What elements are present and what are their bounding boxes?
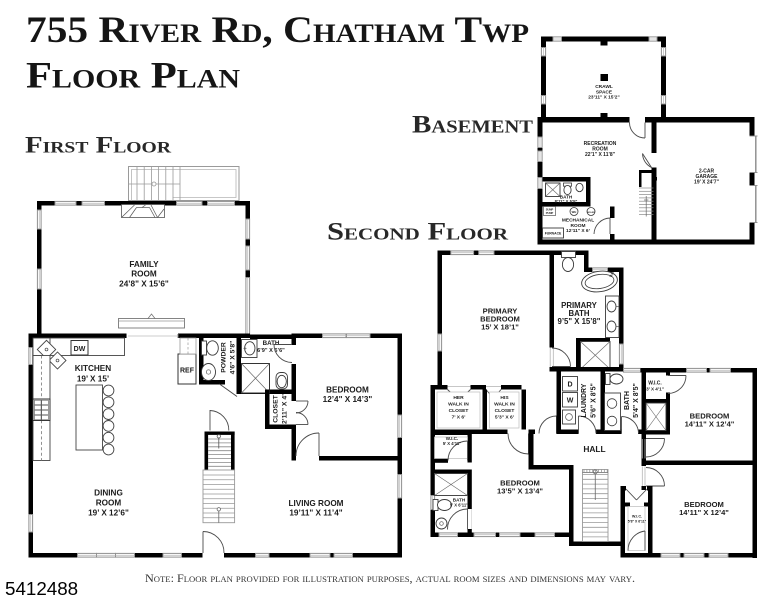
svg-text:8’11" X 5’5": 8’11" X 5’5" [555,199,578,204]
svg-text:19’ X 12’6": 19’ X 12’6" [88,509,129,518]
svg-text:12’4" X 14’3": 12’4" X 14’3" [323,395,373,404]
svg-text:5’3" X 6’: 5’3" X 6’ [495,415,515,421]
svg-text:5’ X 6’11": 5’ X 6’11" [450,503,468,508]
svg-text:SPACE: SPACE [596,89,613,95]
svg-text:LAUNDRY: LAUNDRY [581,383,588,417]
svg-text:14’11" X 12’4": 14’11" X 12’4" [679,508,729,517]
svg-text:6’9" X 6’6": 6’9" X 6’6" [257,348,285,354]
svg-text:W: W [567,398,574,405]
svg-text:FURNACE: FURNACE [545,232,562,236]
svg-text:Basement: Basement [412,109,533,138]
svg-text:ROOM: ROOM [571,223,586,229]
svg-text:CLOSET: CLOSET [273,394,280,422]
svg-text:Second Floor: Second Floor [327,219,509,246]
svg-text:7’ X 6’: 7’ X 6’ [452,415,467,421]
svg-text:W.I.C.: W.I.C. [632,515,642,519]
svg-text:23’11" X 15’2": 23’11" X 15’2" [588,95,620,101]
svg-text:WH: WH [572,210,577,214]
svg-text:5’8" X 6’11": 5’8" X 6’11" [628,519,647,523]
svg-text:ROOM: ROOM [96,499,122,508]
svg-text:12’11" X 6’: 12’11" X 6’ [566,228,590,234]
svg-text:BOILER: BOILER [587,212,595,214]
svg-text:19’11" X 11’4": 19’11" X 11’4" [289,509,342,518]
svg-text:14’11" X 12’4": 14’11" X 12’4" [685,420,735,429]
svg-text:FAMILY: FAMILY [129,260,159,269]
svg-text:BEDROOM: BEDROOM [326,386,369,395]
svg-text:PUMP: PUMP [546,211,554,215]
svg-text:REF: REF [180,368,195,375]
svg-text:POWDER: POWDER [221,342,228,373]
svg-text:5’ X 4’11": 5’ X 4’11" [443,441,461,446]
svg-text:BATH: BATH [624,391,631,410]
svg-text:W.I.C.: W.I.C. [446,436,459,441]
svg-text:13’5" X 13’4": 13’5" X 13’4" [497,487,543,496]
svg-text:CRAWL: CRAWL [595,84,613,90]
svg-text:HER: HER [453,395,464,401]
svg-text:4’6" X 5’8": 4’6" X 5’8" [230,341,237,375]
svg-text:WALK IN: WALK IN [448,402,469,408]
svg-text:24’8" X 15’6": 24’8" X 15’6" [119,279,169,288]
svg-text:755 River Rd, Chatham Twp: 755 River Rd, Chatham Twp [26,10,529,51]
svg-text:CLOSET: CLOSET [495,408,515,414]
svg-text:D: D [567,382,572,389]
svg-text:HIS: HIS [500,395,509,401]
svg-text:ROOM: ROOM [131,270,157,279]
svg-text:19’ X 15’: 19’ X 15’ [77,375,109,384]
svg-text:5’6" X 8’5": 5’6" X 8’5" [591,383,598,418]
svg-text:15’ X 18’1": 15’ X 18’1" [481,323,519,332]
svg-text:MECHANICAL: MECHANICAL [562,218,594,224]
svg-text:2’11" X 4’: 2’11" X 4’ [282,394,289,424]
svg-text:19’ X 24’7": 19’ X 24’7" [694,180,720,186]
svg-text:DW: DW [74,346,86,353]
svg-text:KITCHEN: KITCHEN [75,364,111,373]
svg-text:22’1" X 11’8": 22’1" X 11’8" [585,152,616,158]
svg-text:CLOSET: CLOSET [449,408,469,414]
svg-text:First Floor: First Floor [25,132,172,158]
svg-text:WALK IN: WALK IN [494,402,515,408]
svg-text:3’ X 4’1": 3’ X 4’1" [646,387,664,392]
svg-text:DINING: DINING [94,489,123,498]
svg-text:LIVING ROOM: LIVING ROOM [288,499,343,508]
svg-text:HALL: HALL [583,444,605,454]
svg-text:9’5" X 15’8": 9’5" X 15’8" [558,317,601,326]
svg-text:Floor Plan: Floor Plan [26,56,240,97]
svg-text:5412488: 5412488 [5,578,78,599]
svg-text:5’4" X 8’5": 5’4" X 8’5" [633,383,640,418]
svg-text:BATH: BATH [263,340,280,347]
svg-text:Note: Floor plan provided for: Note: Floor plan provided for illustrati… [145,573,635,585]
